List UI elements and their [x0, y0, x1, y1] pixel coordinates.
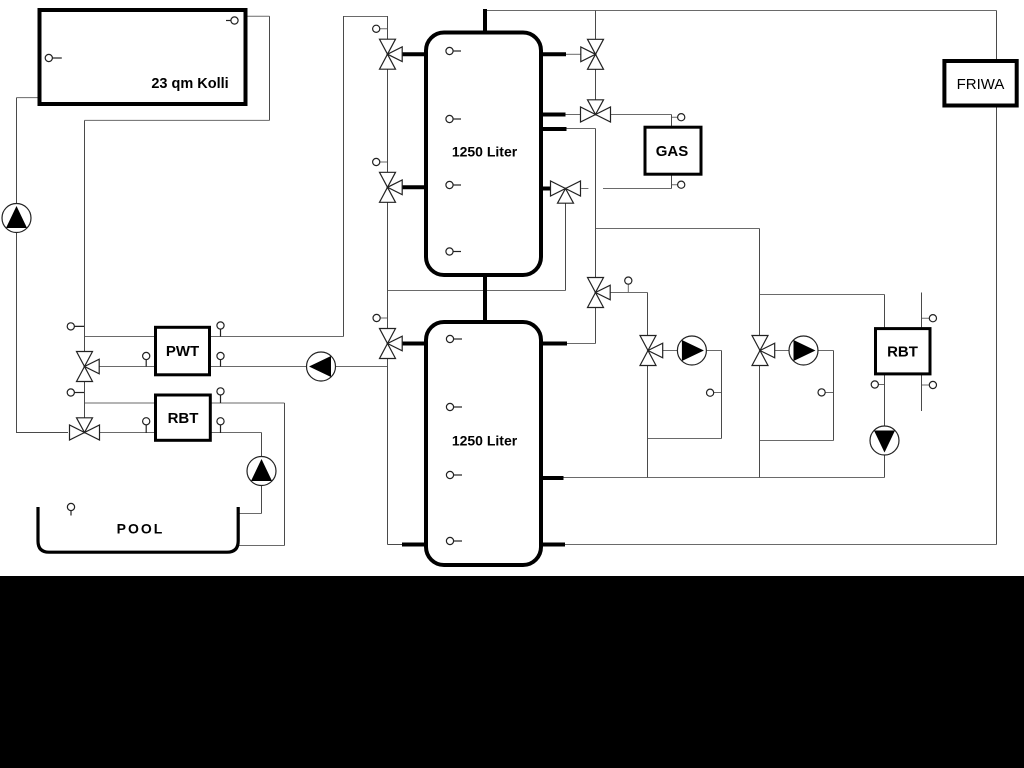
svg-text:FRIWA: FRIWA: [957, 76, 1005, 93]
svg-text:23 qm Kolli: 23 qm Kolli: [151, 76, 228, 92]
svg-text:1250 Liter: 1250 Liter: [452, 433, 518, 449]
svg-text:1250 Liter: 1250 Liter: [452, 144, 518, 160]
svg-text:RBT: RBT: [887, 344, 918, 361]
svg-text:POOL: POOL: [117, 521, 165, 537]
svg-text:GAS: GAS: [656, 143, 689, 160]
svg-text:PWT: PWT: [166, 343, 199, 360]
svg-text:RBT: RBT: [168, 410, 199, 427]
